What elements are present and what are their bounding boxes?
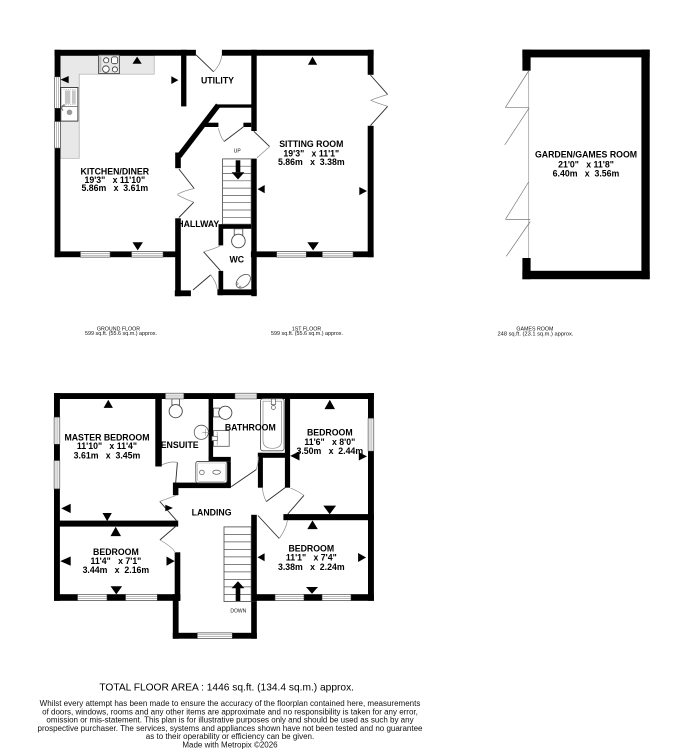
svg-text:LANDING: LANDING	[192, 508, 232, 518]
svg-text:ENSUITE: ENSUITE	[161, 440, 199, 450]
svg-text:UP: UP	[234, 149, 242, 155]
svg-text:3.61m x 3.45m: 3.61m x 3.45m	[74, 450, 141, 460]
svg-text:599 sq.ft. (55.6 sq.m.) approx: 599 sq.ft. (55.6 sq.m.) approx.	[85, 331, 157, 337]
svg-text:UTILITY: UTILITY	[201, 76, 234, 86]
svg-text:HALLWAY: HALLWAY	[177, 219, 219, 229]
svg-text:5.86m x 3.38m: 5.86m x 3.38m	[278, 157, 345, 167]
svg-text:599 sq.ft. (55.6 sq.m.) approx: 599 sq.ft. (55.6 sq.m.) approx.	[271, 331, 343, 337]
svg-text:TOTAL FLOOR AREA : 1446 sq.ft.: TOTAL FLOOR AREA : 1446 sq.ft. (134.4 sq…	[99, 683, 354, 694]
svg-text:BATHROOM: BATHROOM	[225, 423, 276, 433]
svg-text:WC: WC	[230, 254, 245, 264]
svg-text:3.38m x 2.24m: 3.38m x 2.24m	[278, 562, 345, 572]
svg-text:3.50m x 2.44m: 3.50m x 2.44m	[296, 446, 363, 456]
svg-text:DOWN: DOWN	[230, 609, 246, 615]
svg-text:248 sq.ft. (23.1 sq.m.) approx: 248 sq.ft. (23.1 sq.m.) approx.	[498, 331, 574, 337]
svg-text:SITTING ROOM: SITTING ROOM	[279, 139, 343, 149]
svg-text:GARDEN/GAMES ROOM: GARDEN/GAMES ROOM	[535, 150, 637, 160]
svg-text:3.44m x 2.16m: 3.44m x 2.16m	[83, 565, 150, 575]
svg-text:5.86m x 3.61m: 5.86m x 3.61m	[81, 183, 148, 193]
svg-text:6.40m x 3.56m: 6.40m x 3.56m	[553, 169, 620, 179]
svg-text:Made with Metropix ©2026: Made with Metropix ©2026	[182, 741, 278, 750]
